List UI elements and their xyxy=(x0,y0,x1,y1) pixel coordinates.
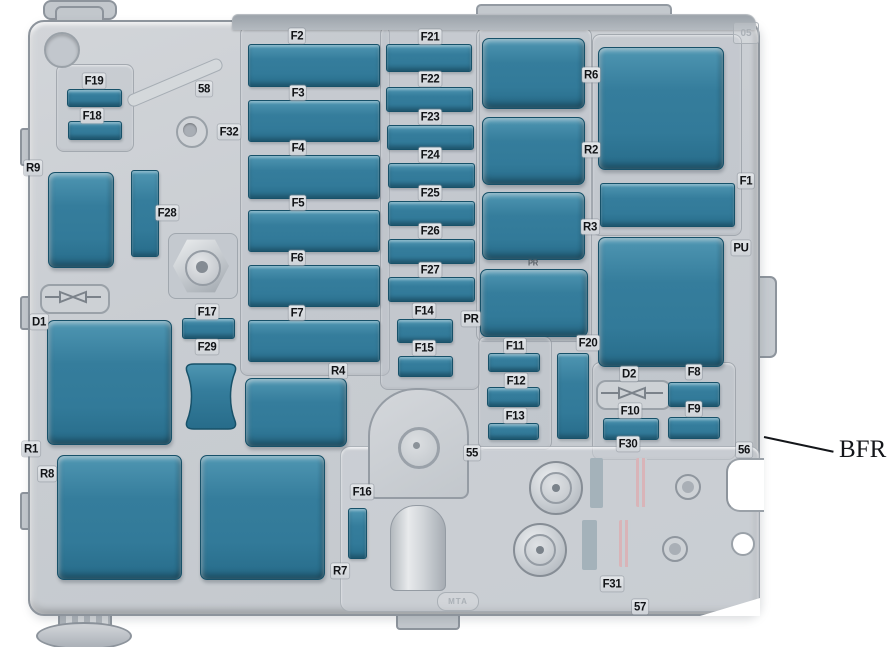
label-PR-embossed: PR xyxy=(526,259,540,270)
component-large-relay-lower xyxy=(598,237,724,367)
label-R6: R6 xyxy=(582,67,600,82)
label-R9: R9 xyxy=(24,160,42,175)
component-F27 xyxy=(388,277,475,302)
component-R2 xyxy=(482,117,585,185)
label-F16: F16 xyxy=(351,484,374,499)
component-F22 xyxy=(386,87,473,112)
component-R3 xyxy=(482,192,585,260)
callout-label: BFR xyxy=(839,437,886,462)
label-F26: F26 xyxy=(419,223,442,238)
label-F8: F8 xyxy=(686,364,703,379)
component-F3 xyxy=(248,100,380,142)
label-F31: F31 xyxy=(601,576,624,591)
label-F4: F4 xyxy=(290,140,307,155)
corner-mark: 05 xyxy=(733,22,759,44)
label-PR: PR xyxy=(461,311,480,326)
component-F5 xyxy=(248,210,380,252)
label-F19: F19 xyxy=(83,73,106,88)
boss-hole-2 xyxy=(662,536,688,562)
component-F7 xyxy=(248,320,380,362)
component-R8 xyxy=(57,455,182,580)
label-F3: F3 xyxy=(290,85,307,100)
component-R9 xyxy=(48,172,114,268)
screw-hole-inner xyxy=(183,123,197,137)
component-F25 xyxy=(388,201,475,226)
label-55: 55 xyxy=(464,445,480,460)
label-F25: F25 xyxy=(419,185,442,200)
component-F16 xyxy=(348,508,367,559)
label-F30: F30 xyxy=(617,436,640,451)
manufacturer-logo: MTA xyxy=(437,592,479,611)
label-56: 56 xyxy=(736,442,752,457)
label-F18: F18 xyxy=(81,108,104,123)
component-F24 xyxy=(388,163,475,188)
pink-stripe-2 xyxy=(619,520,631,567)
component-large-relay-upper xyxy=(598,47,724,170)
label-57: 57 xyxy=(632,599,648,614)
label-F11: F11 xyxy=(504,338,526,353)
bottom-stud-flange xyxy=(36,622,132,647)
component-F18 xyxy=(68,121,122,140)
label-F27: F27 xyxy=(419,262,442,277)
component-F15 xyxy=(398,356,453,377)
label-F12: F12 xyxy=(505,373,528,388)
label-R4: R4 xyxy=(329,363,347,378)
label-F10: F10 xyxy=(619,403,642,418)
component-F29 xyxy=(185,363,237,430)
label-D2: D2 xyxy=(620,366,638,381)
component-F11 xyxy=(488,353,540,372)
component-F21 xyxy=(386,44,472,72)
cylinder-post xyxy=(390,505,446,591)
component-R4 xyxy=(245,378,347,447)
label-F24: F24 xyxy=(419,147,442,162)
top-rim-band xyxy=(232,14,756,30)
component-F6 xyxy=(248,265,380,307)
pink-stripe-1 xyxy=(636,458,647,507)
label-F20: F20 xyxy=(577,335,600,350)
component-F19 xyxy=(67,89,122,107)
component-F12 xyxy=(487,387,540,407)
label-R3: R3 xyxy=(581,219,599,234)
label-F6: F6 xyxy=(289,250,306,265)
component-F9 xyxy=(668,417,720,439)
component-F2 xyxy=(248,44,380,87)
label-PU: PU xyxy=(731,240,750,255)
diode-symbol-d1 xyxy=(40,284,110,314)
label-F29: F29 xyxy=(196,339,219,354)
label-F13: F13 xyxy=(504,408,527,423)
component-R7 xyxy=(200,455,325,580)
label-R8: R8 xyxy=(38,466,56,481)
label-F17: F17 xyxy=(196,304,219,319)
label-F2: F2 xyxy=(289,28,306,43)
label-F15: F15 xyxy=(413,340,436,355)
component-R6 xyxy=(482,38,585,109)
component-F26 xyxy=(388,239,475,264)
fuse-box-diagram: 05 MTA BFR F19F1858F32R9F28F17F29D1R1R8R… xyxy=(0,0,888,647)
label-F1: F1 xyxy=(738,173,755,188)
component-F4 xyxy=(248,155,380,199)
mount-tower-hole xyxy=(398,427,440,469)
hex-terminal-center xyxy=(196,261,208,273)
through-hole xyxy=(731,532,755,556)
boss-hole-1 xyxy=(675,474,701,500)
mount-tower-pin xyxy=(413,442,420,449)
corner-hole xyxy=(44,32,80,68)
label-R2: R2 xyxy=(582,142,600,157)
label-F14: F14 xyxy=(413,303,436,318)
component-F23 xyxy=(387,125,474,150)
label-F23: F23 xyxy=(419,109,442,124)
component-PR xyxy=(480,269,588,337)
terminal-screw-1 xyxy=(529,461,583,515)
component-F17 xyxy=(182,318,235,339)
label-F9: F9 xyxy=(686,401,703,416)
label-F7: F7 xyxy=(289,305,306,320)
gray-stripe-2 xyxy=(582,520,597,570)
component-F13 xyxy=(488,423,539,440)
component-F20 xyxy=(557,353,589,439)
label-58: 58 xyxy=(196,81,212,96)
component-F14 xyxy=(397,319,453,343)
label-F32: F32 xyxy=(218,124,241,139)
label-F28: F28 xyxy=(156,205,179,220)
label-F5: F5 xyxy=(290,195,307,210)
label-R1: R1 xyxy=(22,441,40,456)
label-F22: F22 xyxy=(419,71,442,86)
label-R7: R7 xyxy=(331,563,349,578)
gray-stripe-1 xyxy=(590,458,603,508)
component-D1 xyxy=(47,320,172,445)
label-F21: F21 xyxy=(419,29,442,44)
right-edge-notch xyxy=(726,458,764,512)
component-F1 xyxy=(600,183,735,227)
label-D1: D1 xyxy=(30,314,48,329)
callout-line xyxy=(764,436,834,453)
terminal-screw-2 xyxy=(513,523,567,577)
